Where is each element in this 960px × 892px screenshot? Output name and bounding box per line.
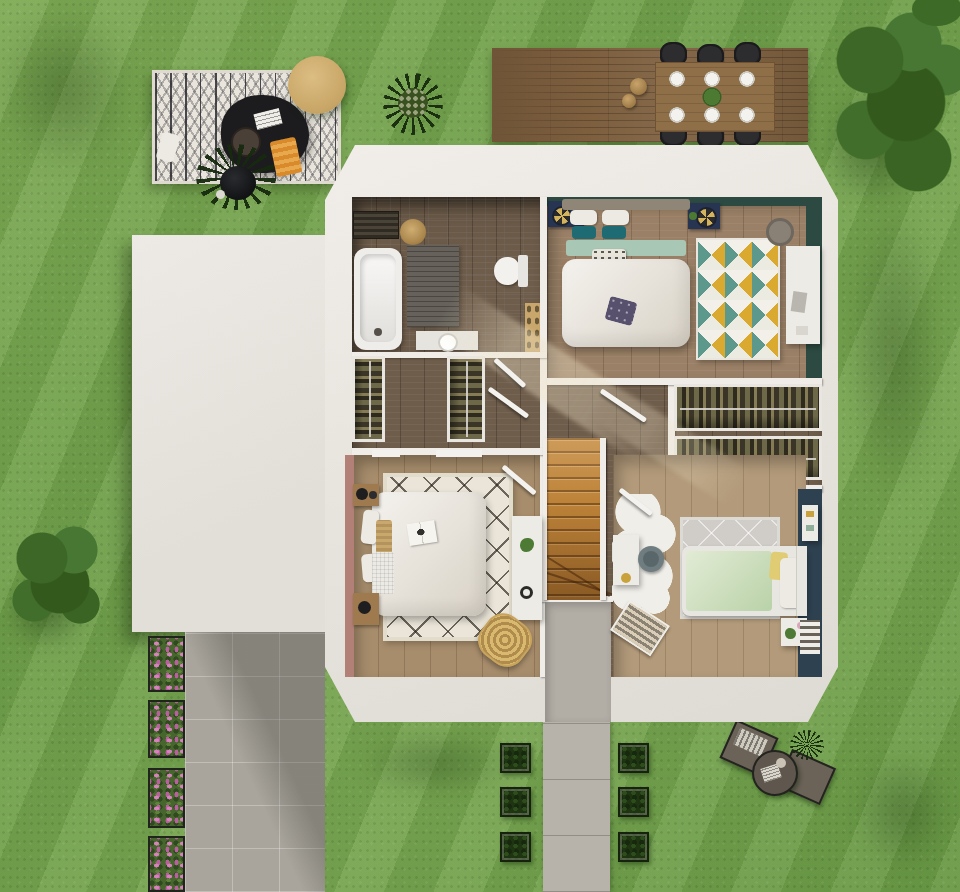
decor-round [358,601,371,614]
clothes-rail [680,408,816,410]
teal-pillow [572,226,596,239]
hedge-planter [500,832,531,862]
terrace-deck [492,48,808,142]
desk-plant [520,538,534,552]
hedge-planter [618,743,649,773]
geometric-rug [696,238,780,360]
staircase [547,438,600,600]
desk-bedroom-2 [512,516,542,620]
shrub-center [398,88,428,118]
pillow [602,210,629,225]
wardrobe [447,356,485,442]
clothes-rail [369,361,371,438]
waffle-throw [372,552,394,594]
flower-box [148,836,185,892]
flower-box [148,636,185,692]
driveway [185,632,325,892]
grass-shadow [838,730,960,892]
nightstand [353,484,379,506]
kids-bed [682,546,806,616]
small-ball [216,190,225,199]
driveway-shadow [185,632,325,892]
knit-blanket [376,520,392,554]
stair-stringer [543,438,547,600]
garage-roof [132,235,325,632]
dresser [786,246,820,344]
stair-railing [600,438,606,600]
pillow [570,210,597,225]
clock [696,207,717,228]
desk-chair [638,546,664,572]
tree-top-right [832,8,960,208]
white-pillow [155,131,180,163]
wall-radiator [800,620,820,654]
plant-dot [785,628,796,639]
window-sill [372,450,400,457]
flower-box [148,768,185,828]
hedge-planter [618,832,649,862]
feather-decor [413,525,429,539]
toilet-tank [518,255,528,287]
desk-ring [520,586,533,599]
entry-porch-roof [545,602,611,722]
hedge-planter [618,787,649,817]
headboard [796,546,807,616]
shelf-item [806,511,814,517]
hedge-planter [500,787,531,817]
kids-desk [613,535,639,585]
clay-vase [622,94,636,108]
towel-radiator [353,211,399,239]
floor-plan-render [0,0,960,892]
window-sill [436,450,482,457]
house-floor-plan [325,145,838,722]
hedge-planter [500,743,531,773]
flower-box [148,700,185,758]
bed-2 [362,490,488,618]
side-table [752,750,798,796]
bathtub [354,248,402,350]
nightstand-right [688,203,720,229]
wall-basket [400,219,426,245]
plant-dot [689,212,697,220]
decor-round [369,491,377,499]
nightstand [353,593,379,625]
round-pouf [288,56,346,114]
bathtub-drain [374,328,382,336]
desk-item [621,573,631,583]
garden-path [543,722,610,892]
decor-round [356,488,368,500]
wardrobe [352,356,385,442]
clothes-rack [674,384,822,431]
clothes-rail [466,361,468,438]
teal-pillow [602,226,626,239]
chair-seat [643,551,659,567]
shelf-item [806,525,814,531]
dresser-item [791,291,808,313]
green-mattress [686,551,772,611]
wall-shelf [802,505,818,541]
dining-table [655,62,775,132]
mint-blanket [566,240,686,256]
grass-shadow [0,0,160,200]
headboard [562,199,690,210]
clay-vase [630,78,647,95]
small-plant [790,730,824,760]
toilet [494,257,520,285]
master-bed [562,199,690,347]
tree-left [8,520,112,632]
laundry-basket [766,218,794,246]
dresser-item [796,326,808,335]
plant-pot [220,166,256,200]
open-book [406,520,437,546]
cup [776,758,786,768]
